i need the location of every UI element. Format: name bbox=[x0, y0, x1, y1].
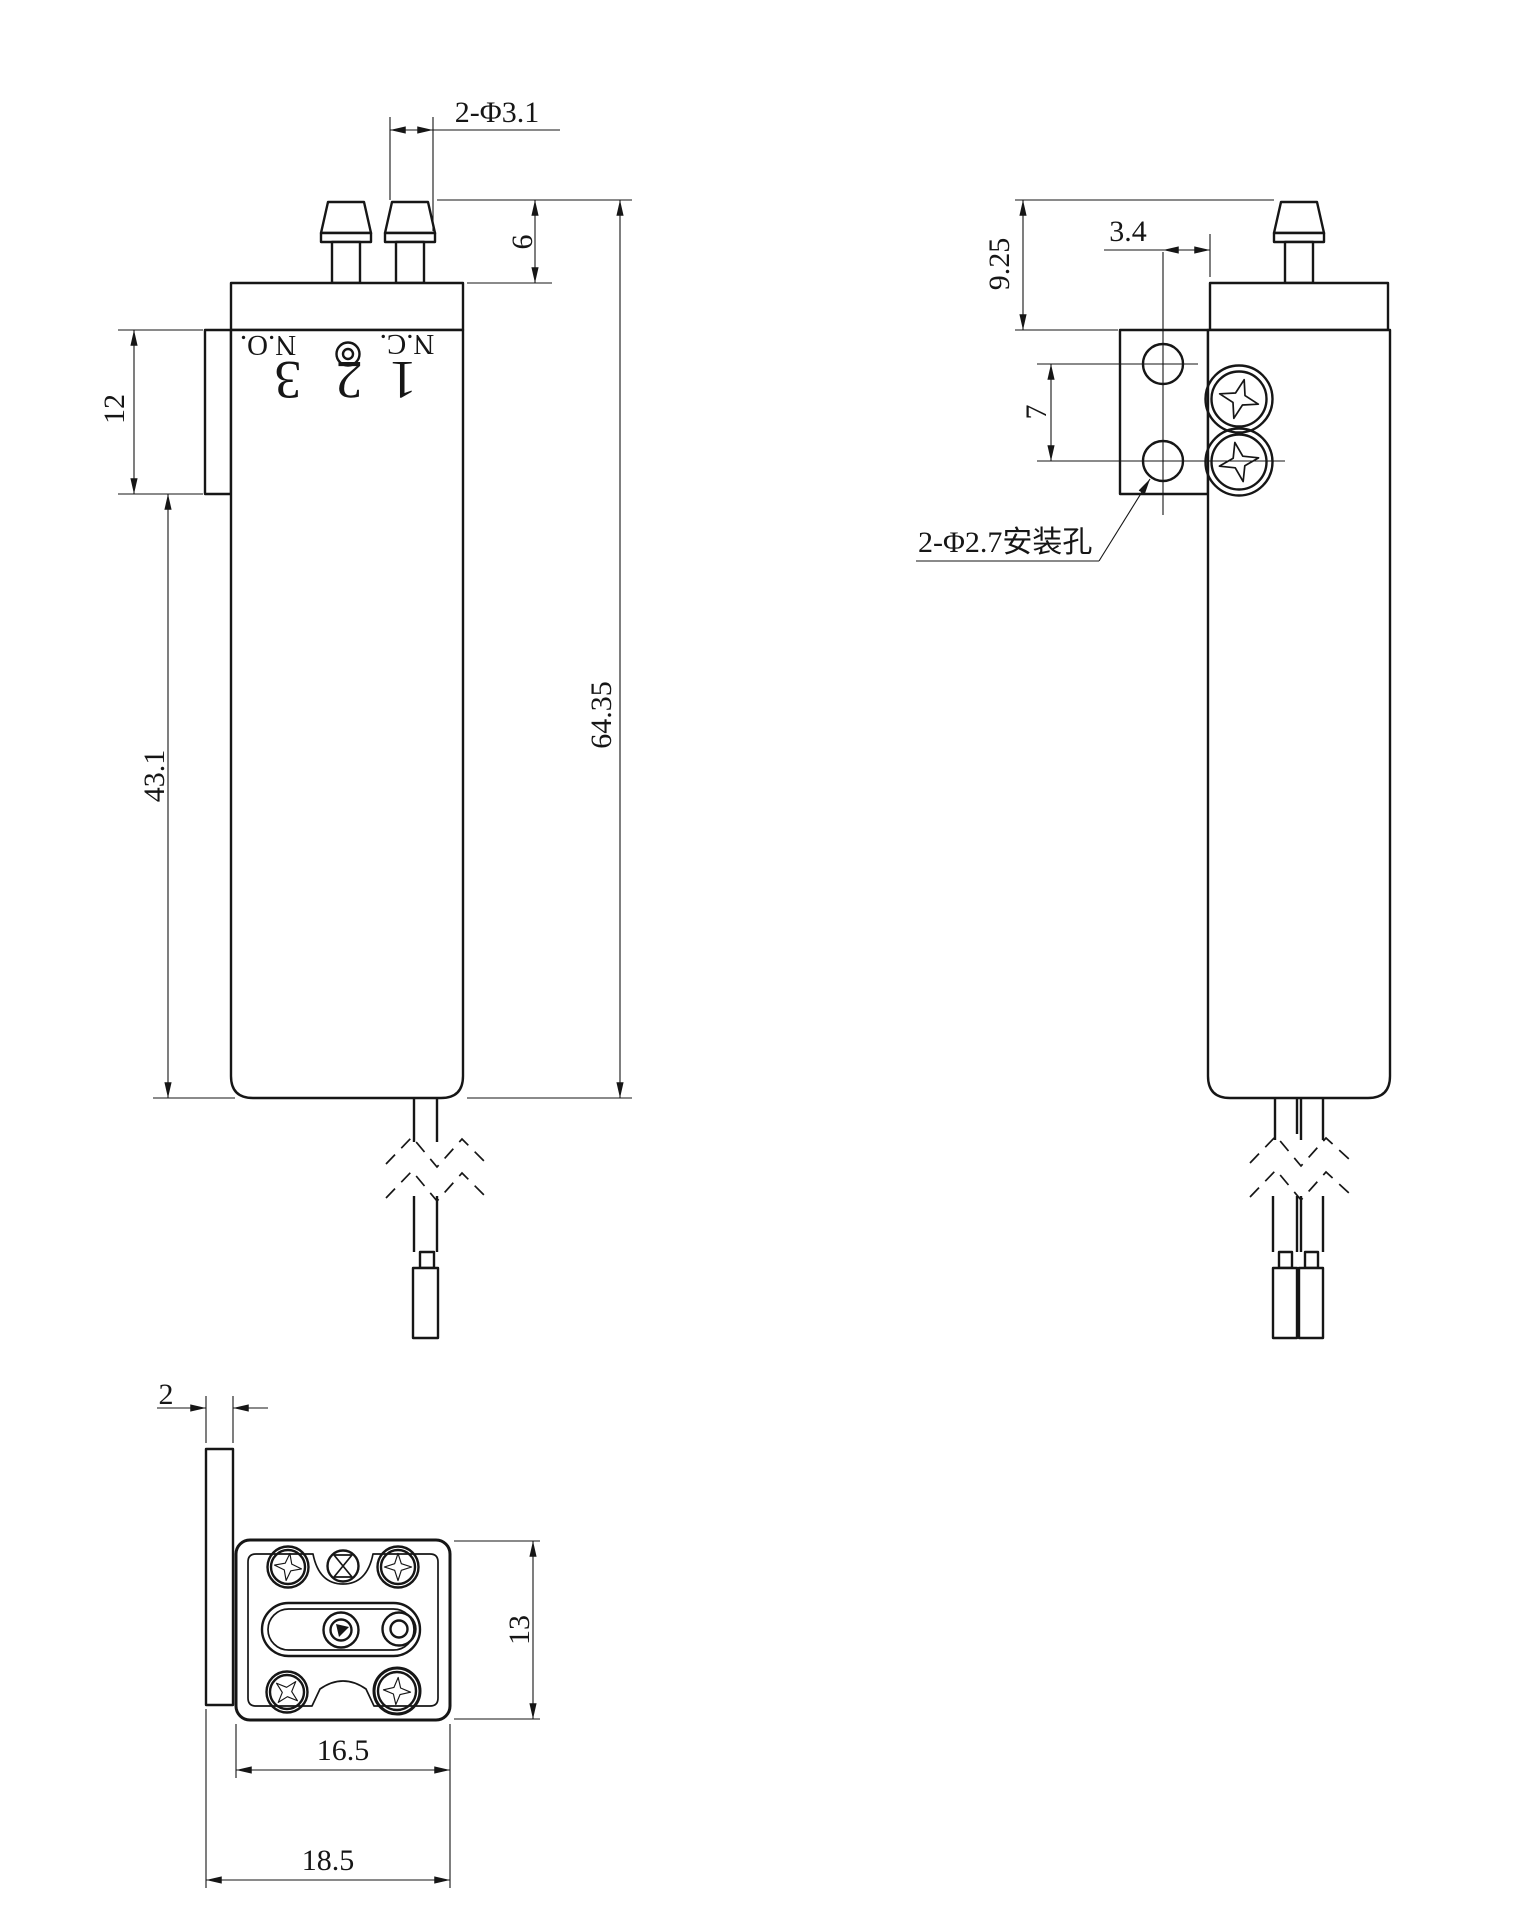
break-line-2 bbox=[1250, 1170, 1350, 1200]
dim-text-port-to-bracket: 9.25 bbox=[983, 238, 1016, 291]
barb-neck bbox=[332, 242, 360, 283]
marking-2: 2 bbox=[336, 350, 363, 410]
terminal-pin bbox=[413, 1268, 438, 1338]
screw-head-outer bbox=[378, 1672, 416, 1710]
mounting-bracket bbox=[1120, 330, 1208, 494]
dim-port-height: 6 bbox=[437, 200, 632, 283]
hose-barb-left bbox=[321, 202, 371, 283]
dim-hole-to-body: 3.4 bbox=[1104, 215, 1210, 277]
screw-bottom-right bbox=[374, 1668, 420, 1714]
marking-1: 1 bbox=[390, 350, 417, 410]
note-text-mounting-holes: 2-Φ2.7安装孔 bbox=[918, 526, 1092, 559]
dim-text-overall-length: 64.35 bbox=[585, 681, 618, 749]
break-line-1 bbox=[386, 1137, 484, 1167]
phillips-recess-icon bbox=[384, 1553, 411, 1580]
dim-hole-pitch: 7 bbox=[1020, 364, 1053, 461]
screw-head-ring bbox=[374, 1668, 420, 1714]
wires-lower bbox=[1273, 1196, 1323, 1252]
terminal-neck bbox=[1279, 1252, 1292, 1268]
dim-text-coil-band: 12 bbox=[98, 394, 131, 424]
dim-text-body-length: 43.1 bbox=[138, 750, 171, 803]
marking-3: 3 bbox=[275, 350, 302, 410]
barb-collar bbox=[321, 233, 371, 242]
dim-text-hole-pitch: 7 bbox=[1020, 405, 1053, 420]
lead-wire-front bbox=[386, 1098, 484, 1338]
hose-barb-side bbox=[1274, 202, 1324, 283]
valve-cap-side bbox=[1210, 283, 1388, 330]
hose-barb-right bbox=[385, 202, 435, 283]
wire-upper bbox=[414, 1098, 437, 1142]
right-port-outer bbox=[383, 1613, 416, 1646]
dim-coil-band: 12 bbox=[98, 330, 203, 494]
barb-neck bbox=[396, 242, 424, 283]
bracket-plate bbox=[206, 1449, 233, 1705]
note-mounting-holes: 2-Φ2.7安装孔 bbox=[916, 479, 1150, 561]
ext-lines bbox=[206, 1396, 233, 1443]
lead-wires-side bbox=[1250, 1098, 1350, 1338]
terminal-neck bbox=[1305, 1252, 1318, 1268]
valve-dimension-drawing: N.O. 3 2 N.C. 1 2-Φ3.1 6 bbox=[0, 0, 1536, 1920]
terminal-neck bbox=[420, 1252, 434, 1268]
orifice-x-icon bbox=[334, 1555, 352, 1577]
dim-text-body-width: 16.5 bbox=[317, 1734, 370, 1767]
screw-head-outer bbox=[268, 1547, 309, 1588]
bracket-plate-edge bbox=[205, 330, 231, 494]
dim-text-port-height: 6 bbox=[506, 235, 539, 250]
right-port-inner bbox=[391, 1621, 408, 1638]
barb-neck bbox=[1285, 242, 1313, 283]
barb-cone bbox=[321, 202, 371, 233]
phillips-recess-icon bbox=[273, 1552, 304, 1583]
valve-cap bbox=[231, 283, 463, 330]
break-line-2 bbox=[386, 1171, 484, 1201]
center-port-arrow-icon bbox=[336, 1624, 349, 1637]
dim-overall-length: 64.35 bbox=[467, 200, 632, 1098]
phillips-recess-icon bbox=[382, 1676, 411, 1705]
dim-body-length: 43.1 bbox=[138, 494, 235, 1098]
barb-cone bbox=[385, 202, 435, 233]
screw-head-inner bbox=[271, 1550, 305, 1584]
engineering-drawing-page: N.O. 3 2 N.C. 1 2-Φ3.1 6 bbox=[0, 0, 1536, 1920]
screw-top-right bbox=[378, 1547, 419, 1588]
barb-collar bbox=[385, 233, 435, 242]
center-slot bbox=[262, 1603, 420, 1656]
bottom-view: 2 13 16.5 18.5 bbox=[157, 1378, 540, 1888]
orifice-port bbox=[328, 1551, 359, 1582]
dim-text-plate-thickness: 2 bbox=[159, 1378, 174, 1411]
dim-text-body-depth: 13 bbox=[503, 1615, 536, 1645]
side-view: 9.25 3.4 7 2-Φ2.7安装孔 bbox=[916, 200, 1390, 1338]
valve-body bbox=[231, 330, 463, 1098]
barb-cone bbox=[1274, 202, 1324, 233]
screw-top-left bbox=[268, 1547, 309, 1588]
dim-plate-thickness: 2 bbox=[157, 1378, 268, 1443]
dim-text-port-dia: 2-Φ3.1 bbox=[455, 96, 539, 129]
terminal-pin bbox=[1299, 1268, 1323, 1338]
terminal-pin bbox=[1273, 1268, 1297, 1338]
front-view: N.O. 3 2 N.C. 1 2-Φ3.1 6 bbox=[98, 96, 632, 1338]
dim-text-overall-width: 18.5 bbox=[302, 1844, 355, 1877]
break-line-1 bbox=[1250, 1136, 1350, 1166]
wires-upper bbox=[1275, 1098, 1323, 1140]
wire-lower bbox=[414, 1196, 437, 1252]
dim-body-depth: 13 bbox=[454, 1541, 540, 1719]
barb-collar bbox=[1274, 233, 1324, 242]
screw-head-outer bbox=[378, 1547, 419, 1588]
dim-text-hole-to-body: 3.4 bbox=[1109, 215, 1147, 248]
screw-head-inner bbox=[270, 1675, 304, 1709]
